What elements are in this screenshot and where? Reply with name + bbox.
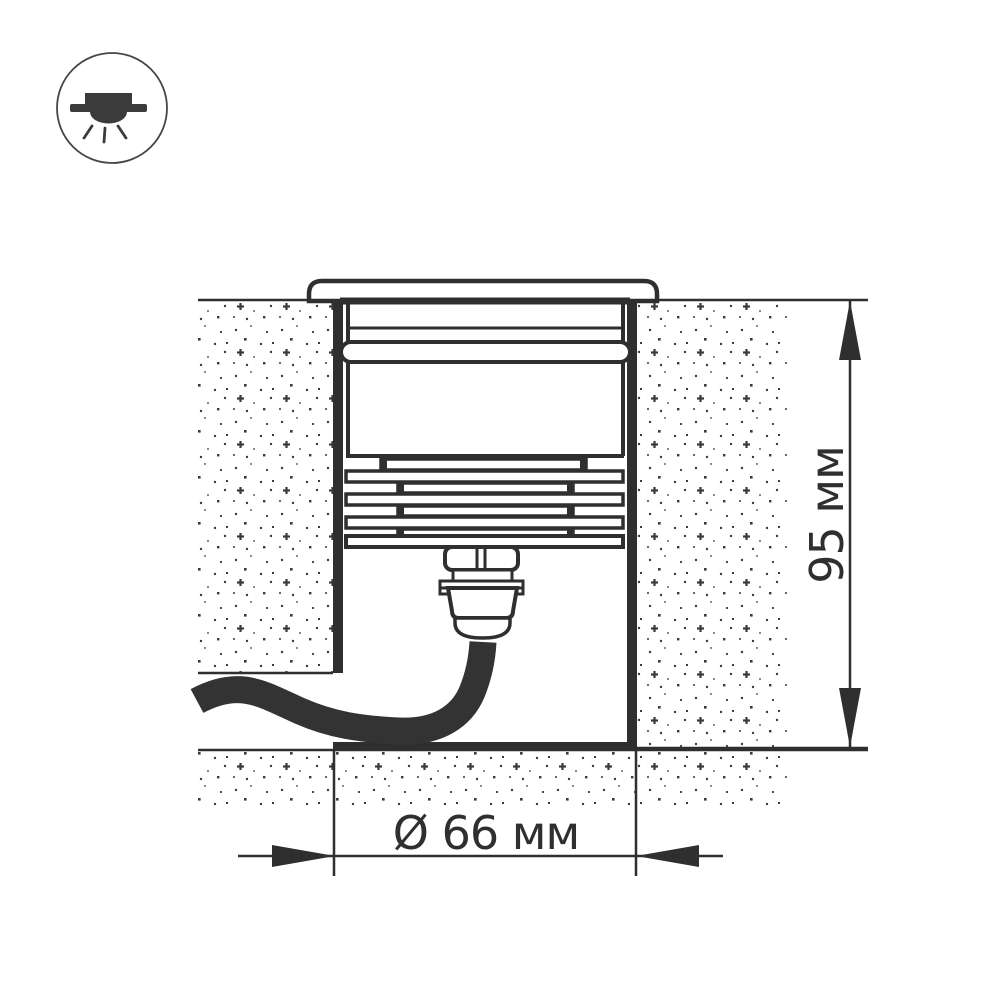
ground-strip-lower-left — [198, 752, 333, 809]
fin-narrow — [381, 459, 586, 470]
height-label: 95 мм — [800, 446, 854, 584]
ground-block-upper-right — [637, 301, 787, 749]
fin-wide — [346, 494, 623, 505]
arrow-up-icon — [839, 301, 861, 360]
fin-narrow — [398, 483, 573, 493]
sleeve-wall-right — [627, 299, 637, 744]
gland-dome — [455, 618, 510, 638]
diameter-label: Ø 66 мм — [393, 806, 579, 860]
heatsink-fins — [346, 459, 623, 547]
gland-bell — [448, 588, 517, 618]
luminaire — [309, 281, 657, 638]
ground-strip-lower-right — [637, 752, 787, 809]
gland-neck — [453, 570, 512, 581]
installation-diagram: 95 мм Ø 66 мм — [0, 0, 1000, 1000]
icon-ceiling-bar — [70, 104, 147, 112]
ground-strip-lower-center — [336, 752, 635, 809]
arrow-right-icon — [272, 845, 335, 867]
sleeve-bottom — [333, 742, 637, 751]
gasket-ring — [341, 342, 630, 362]
cable-gland — [440, 547, 523, 638]
gland-nut — [445, 547, 518, 570]
ground-section — [198, 300, 868, 809]
arrow-left-icon — [636, 845, 699, 867]
arrow-down-icon — [839, 688, 861, 747]
ground-block-upper-left — [198, 301, 333, 673]
fin-narrow — [398, 506, 573, 516]
fin-wide — [346, 471, 623, 482]
diagram-canvas: 95 мм Ø 66 мм — [0, 0, 1000, 1000]
fin-wide — [346, 517, 623, 528]
recessed-light-icon — [57, 53, 167, 163]
